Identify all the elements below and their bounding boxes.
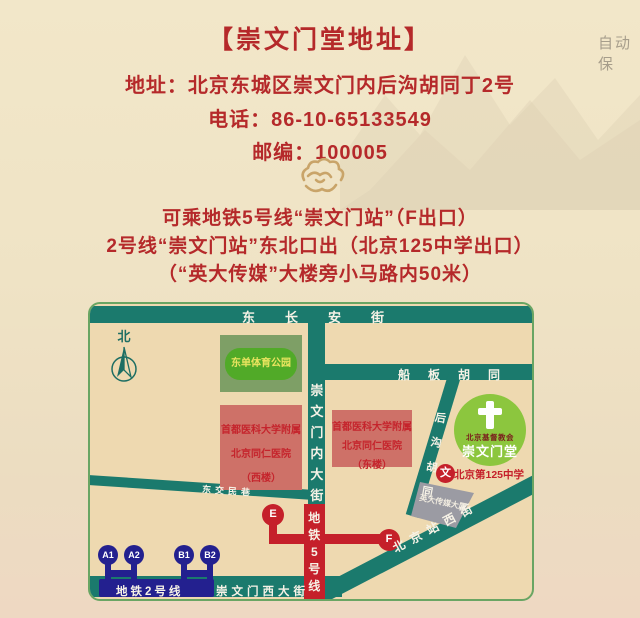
- hospital-west-line2: 北京同仁医院: [220, 443, 302, 467]
- road-label-chongwenmen-west: 崇文门西大街: [216, 583, 309, 599]
- hospital-east-line3: （东楼）: [332, 456, 412, 475]
- cross-icon-bar: [478, 408, 502, 415]
- station-exit-b1: B1: [174, 550, 194, 560]
- page: 自动保 【崇文门堂地址】 地址：北京东城区崇文门内后沟胡同丁2号 电话：86-1…: [0, 0, 640, 618]
- school-name-label: 北京第125中学: [454, 467, 524, 482]
- address-line: 地址：北京东城区崇文门内后沟胡同丁2号: [0, 69, 640, 98]
- location-map: 北 东长安街 崇文门内大街 船板胡同 后沟胡同 北京站西街 东交民巷 崇文门西大…: [88, 302, 534, 601]
- chongwenmen-church-marker: 北京基督教会 崇文门堂: [454, 394, 526, 466]
- station-exit-a2: A2: [124, 550, 144, 560]
- hospital-east-line1: 首都医科大学附属: [332, 418, 412, 437]
- school-marker-icon: 文: [436, 464, 455, 483]
- phone-line: 电话：86-10-65133549: [0, 103, 640, 132]
- road-label-chuanban-hutong: 船板胡同: [398, 366, 518, 383]
- ornament-icon: [294, 156, 346, 198]
- hospital-west-line1: 首都医科大学附属: [220, 419, 302, 443]
- dongdan-sports-park-label: 东单体育公园: [225, 348, 297, 380]
- tongren-hospital-west: 首都医科大学附属 北京同仁医院 （西楼）: [220, 405, 302, 490]
- page-title: 【崇文门堂地址】: [0, 20, 640, 56]
- station-exit-b2: B2: [200, 550, 220, 560]
- tongren-hospital-east: 首都医科大学附属 北京同仁医院 （东楼）: [332, 410, 412, 467]
- hospital-east-line2: 北京同仁医院: [332, 437, 412, 456]
- dongdan-sports-park: 东单体育公园: [220, 335, 302, 392]
- compass-north: 北: [104, 326, 144, 392]
- church-name-label: 崇文门堂: [454, 441, 526, 460]
- north-label: 北: [104, 326, 144, 345]
- compass-arrow-icon: [106, 345, 142, 387]
- station-exit-a1: A1: [98, 550, 118, 560]
- cross-icon: [486, 401, 494, 429]
- station-exit-e: E: [262, 508, 284, 520]
- road-label-changan: 东长安街: [242, 307, 414, 326]
- direction-line-1: 可乘地铁5号线“崇文门站”（F出口）: [0, 203, 640, 230]
- direction-line-3: （“英大传媒”大楼旁小马路内50米）: [0, 259, 640, 286]
- station-exit-f: F: [378, 533, 400, 545]
- road-label-chongwenmennei: 崇文门内大街: [310, 380, 324, 506]
- direction-line-2: 2号线“崇文门站”东北口出（北京125中学出口）: [0, 231, 640, 258]
- line2-label: 地铁2号线: [116, 583, 183, 599]
- line5-label: 地铁5号线: [308, 510, 321, 595]
